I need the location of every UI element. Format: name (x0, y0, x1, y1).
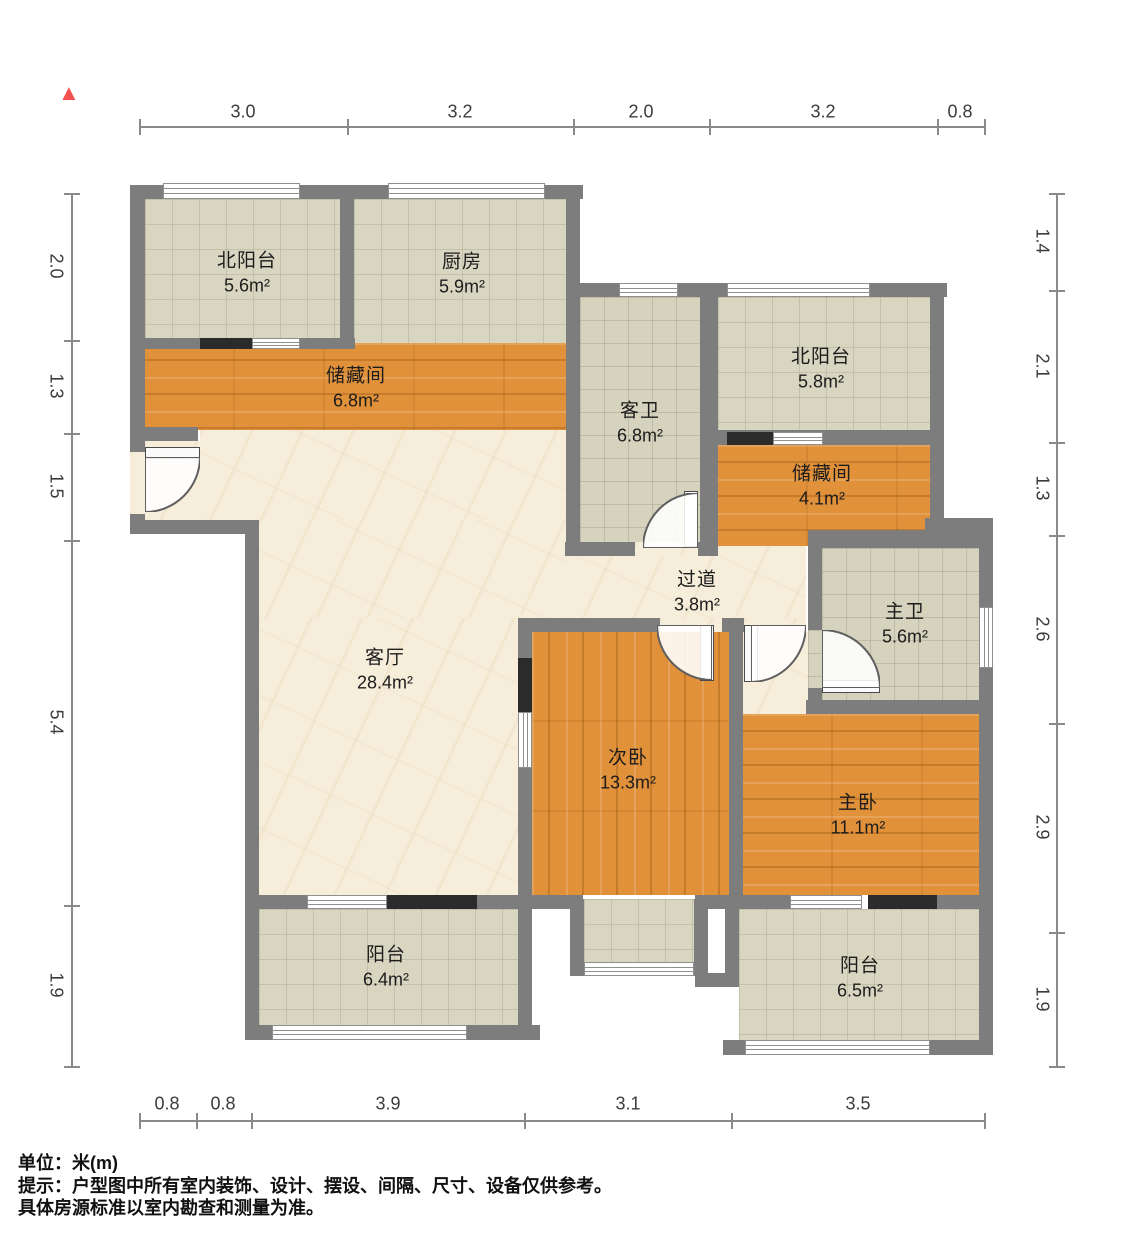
second-bedroom-door-arc (657, 625, 712, 680)
dim-tick (524, 1113, 526, 1129)
floor-door-gap (130, 452, 145, 514)
dim-label: 1.9 (1032, 986, 1053, 1011)
wall-segment (979, 668, 993, 1055)
dim-label: 2.0 (628, 102, 653, 123)
dimension-line-bottom (139, 1120, 986, 1122)
dim-label: 1.9 (46, 972, 67, 997)
dim-label: 3.2 (447, 102, 472, 123)
dim-tick (573, 119, 575, 135)
dim-tick (64, 340, 80, 342)
wall-panel (387, 895, 477, 909)
wall-segment (808, 530, 822, 630)
dim-label: 2.9 (1032, 814, 1053, 839)
window (307, 895, 387, 909)
window (163, 183, 300, 199)
room-label-storage-main: 储藏间 6.8m² (326, 361, 386, 412)
master-bedroom-door-arc (751, 625, 806, 682)
room-area: 5.6m² (217, 276, 277, 297)
room-name: 储藏间 (792, 459, 852, 486)
room-name: 北阳台 (791, 342, 851, 369)
dim-tick (984, 119, 986, 135)
window (619, 283, 678, 297)
dim-label: 5.4 (46, 709, 67, 734)
room-label-guest-bath: 客卫 6.8m² (617, 396, 663, 447)
north-indicator-icon: ▲ (58, 80, 80, 106)
room-area: 5.6m² (882, 627, 928, 648)
dim-tick (139, 1113, 141, 1129)
wall-segment (518, 618, 660, 632)
wall-segment (245, 520, 259, 1040)
room-name: 主卧 (831, 788, 886, 815)
room-label-living-room: 客厅 28.4m² (357, 643, 413, 694)
dim-label: 0.8 (210, 1094, 235, 1115)
wall-segment (700, 283, 718, 556)
footer-notes: 单位：米(m) 提示：户型图中所有室内装饰、设计、摆设、间隔、尺寸、设备仅供参考… (18, 1152, 612, 1220)
dim-label: 0.8 (154, 1094, 179, 1115)
room-name: 次卧 (600, 743, 656, 770)
dim-tick (1049, 535, 1065, 537)
room-name: 主卫 (882, 597, 928, 624)
room-label-storage-small: 储藏间 4.1m² (792, 459, 852, 510)
dim-tick (1049, 442, 1065, 444)
floor-living-room (259, 520, 566, 618)
dim-label: 2.0 (46, 253, 67, 278)
dim-tick (1049, 723, 1065, 725)
dim-label: 2.1 (1032, 353, 1053, 378)
room-label-hallway: 过道 3.8m² (674, 565, 720, 616)
dim-tick (1049, 193, 1065, 195)
room-name: 客厅 (357, 643, 413, 670)
wall-segment (725, 909, 739, 987)
window (979, 607, 993, 668)
wall-segment (130, 514, 145, 534)
dimension-line-left (71, 193, 73, 1067)
floor-bay-window (584, 899, 694, 962)
room-label-north-balcony-nw: 北阳台 5.6m² (217, 246, 277, 297)
dim-tick (1049, 290, 1065, 292)
dim-tick (709, 119, 711, 135)
room-name: 厨房 (439, 247, 485, 274)
room-name: 储藏间 (326, 361, 386, 388)
room-area: 3.8m² (674, 595, 720, 616)
dimension-line-top (139, 126, 986, 128)
room-area: 6.5m² (837, 981, 883, 1002)
dim-tick (251, 1113, 253, 1129)
window (252, 338, 300, 349)
wall-segment (566, 185, 580, 556)
window (584, 962, 694, 976)
dim-tick (984, 1113, 986, 1129)
dim-tick (731, 1113, 733, 1129)
wall-segment (340, 199, 354, 338)
entry-door-arc (145, 457, 200, 512)
dim-tick (64, 193, 80, 195)
dim-label: 1.3 (46, 373, 67, 398)
room-area: 11.1m² (831, 818, 886, 839)
dim-tick (64, 905, 80, 907)
dim-tick (196, 1113, 198, 1129)
wall-segment (930, 283, 944, 530)
wall-segment (130, 185, 145, 452)
wall-segment (808, 688, 822, 700)
wall-segment (694, 899, 708, 976)
dim-label: 3.5 (845, 1094, 870, 1115)
room-area: 6.4m² (363, 970, 409, 991)
wall-segment (979, 518, 993, 607)
guest-bath-door-arc (643, 493, 698, 548)
wall-segment (130, 520, 259, 534)
dim-label: 0.8 (947, 102, 972, 123)
wall-segment (729, 618, 743, 909)
room-area: 6.8m² (617, 426, 663, 447)
dim-tick (347, 119, 349, 135)
wall-segment (518, 909, 532, 1040)
dim-label: 1.3 (1032, 475, 1053, 500)
dim-tick (64, 433, 80, 435)
room-name: 过道 (674, 565, 720, 592)
wall-panel (868, 895, 937, 909)
dim-label: 3.1 (615, 1094, 640, 1115)
dim-tick (64, 540, 80, 542)
window (745, 1040, 930, 1055)
dimension-line-right (1056, 193, 1058, 1068)
room-area: 6.8m² (326, 391, 386, 412)
master-bath-door-arc (822, 630, 880, 688)
wall-panel (200, 338, 252, 349)
wall-segment (822, 530, 993, 548)
room-name: 北阳台 (217, 246, 277, 273)
tip-note-line2: 具体房源标准以室内勘查和测量为准。 (18, 1197, 612, 1220)
floor-living-room (200, 430, 566, 520)
room-area: 4.1m² (792, 489, 852, 510)
window (272, 1025, 467, 1040)
room-label-second-bedroom: 次卧 13.3m² (600, 743, 656, 794)
room-label-master-bedroom: 主卧 11.1m² (831, 788, 886, 839)
dim-label: 1.5 (46, 473, 67, 498)
room-label-kitchen: 厨房 5.9m² (439, 247, 485, 298)
dim-tick (139, 119, 141, 135)
room-area: 5.9m² (439, 277, 485, 298)
floor-door-gap (808, 630, 822, 688)
wall-segment (743, 895, 790, 909)
dim-tick (1049, 932, 1065, 934)
window (388, 183, 545, 199)
room-area: 13.3m² (600, 773, 656, 794)
dim-label: 3.0 (230, 102, 255, 123)
room-area: 5.8m² (791, 372, 851, 393)
wall-panel (518, 658, 532, 712)
room-label-master-bath: 主卫 5.6m² (882, 597, 928, 648)
room-label-north-balcony-ne: 北阳台 5.8m² (791, 342, 851, 393)
unit-note: 单位：米(m) (18, 1152, 612, 1175)
window (727, 283, 870, 297)
tip-note-line1: 提示：户型图中所有室内装饰、设计、摆设、间隔、尺寸、设备仅供参考。 (18, 1175, 612, 1198)
dim-label: 3.9 (375, 1094, 400, 1115)
dim-label: 2.6 (1032, 616, 1053, 641)
window (773, 432, 823, 445)
wall-panel (727, 432, 773, 445)
dim-tick (937, 119, 939, 135)
wall-segment (570, 899, 584, 976)
room-label-balcony-se: 阳台 6.5m² (837, 951, 883, 1002)
room-name: 客卫 (617, 396, 663, 423)
dim-label: 3.2 (810, 102, 835, 123)
room-label-balcony-sw: 阳台 6.4m² (363, 940, 409, 991)
floorplan: ▲ (0, 0, 1125, 1250)
window (790, 895, 862, 909)
dim-label: 1.4 (1032, 228, 1053, 253)
room-name: 阳台 (363, 940, 409, 967)
window (518, 712, 532, 768)
dim-tick (1049, 1066, 1065, 1068)
wall-segment (806, 700, 993, 714)
dim-tick (64, 1066, 80, 1068)
room-area: 28.4m² (357, 673, 413, 694)
room-name: 阳台 (837, 951, 883, 978)
